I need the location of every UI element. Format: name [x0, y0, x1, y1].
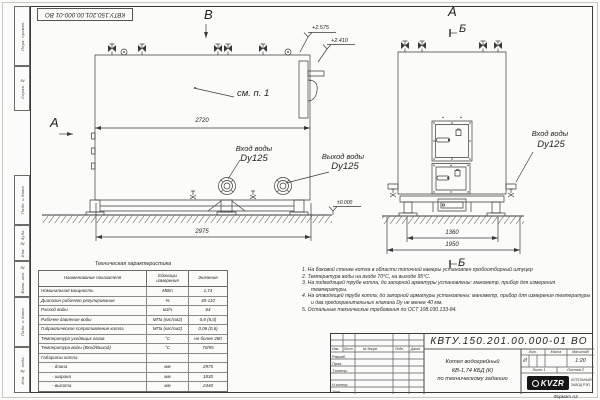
param-unit: мм [147, 363, 189, 372]
col-unit-header: Единицы измерения [147, 271, 189, 286]
role-nkontr: Н.контр. [332, 382, 348, 387]
col-izm: Изм. [332, 347, 339, 351]
param-unit: °С [147, 344, 189, 353]
view-marker-a-top: А [448, 4, 457, 19]
col-sign: Подп. [395, 347, 404, 351]
frame-cell-inv-dubl: Инв. № дубл. [14, 225, 30, 261]
param-name: Номинальная мощность [39, 287, 147, 296]
tech-table-row: - длина мм 2975 [39, 363, 227, 373]
frame-cell-inv-podl: Инв. № подл. [14, 347, 30, 393]
scale-label: Масштаб [567, 350, 594, 354]
tech-table-row: Гидравлическое сопротивление котла МПа (… [39, 325, 227, 335]
sheet-number: Лист 1 [521, 368, 557, 372]
param-value: 64 [189, 306, 227, 315]
param-unit: мм [147, 373, 189, 382]
logo-text: KVZR [541, 379, 564, 388]
note-line: 1. На боковой стенке котла в области топ… [302, 267, 592, 274]
param-name: Рабочее давление воды [39, 316, 147, 325]
param-value: 40-110 [189, 297, 227, 306]
param-value: 0,6 (6,0) [189, 316, 227, 325]
tech-table-row: Температура уходящих газов °С не более 2… [39, 335, 227, 345]
param-value [189, 354, 227, 363]
param-name: Габариты котла [39, 354, 147, 363]
scale-value: 1:20 [567, 358, 594, 364]
param-unit: % [147, 297, 189, 306]
section-marker-b-top: Б [459, 23, 466, 35]
inlet-label-front: Вход воды [522, 129, 578, 138]
param-value: 0,06 (0,6) [189, 325, 227, 334]
note-line: 4. На отводящей трубе котла, до запорной… [302, 293, 592, 306]
elevation-flue: +2.410 [331, 38, 348, 44]
frame-cell-podp-data-1: Подп. и дата [14, 175, 30, 225]
role-prov: Пров. [332, 361, 342, 366]
tech-table-row: Номинальная мощность МВт 1,74 [39, 287, 227, 297]
param-value: 2975 [189, 363, 227, 372]
format-note: Формат А3 [538, 394, 593, 399]
tech-table-title: Техническая характеристика [38, 261, 228, 267]
tech-table-row: Габариты котла [39, 354, 227, 364]
param-name: Диапазон рабочего регулирования [39, 297, 147, 306]
param-name: Температура воды (Вход/Выход) [39, 344, 147, 353]
sheets-total: Листов 2 [557, 368, 594, 372]
param-value: 1,74 [189, 287, 227, 296]
param-name: Температура уходящих газов [39, 335, 147, 344]
param-value: 1830 [189, 373, 227, 382]
param-value: 70/95 [189, 344, 227, 353]
tech-table-row: - ширина мм 1830 [39, 373, 227, 383]
role-tkontr: Т.контр. [332, 368, 348, 373]
col-value-header: Значение [189, 271, 227, 286]
param-unit: °С [147, 335, 189, 344]
inlet-size-front: Dy125 [528, 139, 574, 150]
drawing-sheet: Перв. примен. Справ. № Подп. и дата Инв.… [0, 0, 600, 400]
param-name: - ширина [39, 373, 147, 382]
dim-1950: 1950 [420, 242, 484, 248]
frame-cell-podp-data-2: Подп. и дата [14, 297, 30, 347]
logo-ring-icon [532, 380, 539, 387]
note-reference: см. п. 1 [237, 88, 269, 99]
col-list: Лист [344, 347, 353, 351]
tech-table-row: Рабочее давление воды МПа (кгс/см2) 0,6 … [39, 316, 227, 326]
col-name-header: Наименование показателя [39, 271, 147, 286]
view-marker-b: В [204, 7, 213, 22]
param-unit: МВт [147, 287, 189, 296]
param-name: - длина [39, 363, 147, 372]
product-name: Котел водогрейный КВ-1,74 КБД (К) по тех… [426, 350, 519, 392]
dim-2720: 2720 [170, 118, 234, 124]
tech-table-row: Расход воды м3/ч 64 [39, 306, 227, 316]
lit-value: И [521, 358, 529, 364]
param-unit: МПа (кгс/см2) [147, 316, 189, 325]
elevation-zero: ±0.000 [337, 200, 352, 206]
title-block: КВТУ.150.201.00.000-01 ВО Изм. Лист № до… [330, 333, 593, 393]
tech-table-row: Диапазон рабочего регулирования % 40-110 [39, 297, 227, 307]
tech-table-body: Номинальная мощность МВт 1,74 Диапазон р… [39, 287, 227, 391]
dim-1360: 1360 [420, 230, 484, 236]
param-value: 2440 [189, 382, 227, 391]
param-unit: мм [147, 382, 189, 391]
rotated-docnumber-stamp: КВТУ.150.201.00.000-01 ВО [37, 8, 133, 21]
frame-cell-vzam-inv: Взам. инв. № [14, 261, 30, 297]
company-name: КОТЕЛЬНЫЙ ЗАВОД РЭП [571, 378, 593, 388]
view-marker-a-left: А [50, 115, 59, 130]
param-unit: м3/ч [147, 306, 189, 315]
param-unit [147, 354, 189, 363]
outlet-label-side: Выход воды [312, 152, 374, 161]
doc-number: КВТУ.150.201.00.000-01 ВО [425, 334, 593, 349]
note-line: 5. Остальные технические требования по О… [302, 307, 592, 314]
tech-table-row: Температура воды (Вход/Выход) °С 70/95 [39, 344, 227, 354]
elevation-top: +2.575 [312, 25, 329, 31]
param-unit: МПа (кгс/см2) [147, 325, 189, 334]
frame-cell-sprav-no: Справ. № [14, 66, 30, 111]
inlet-size-side: Dy125 [231, 153, 277, 164]
mass-label: Масса [545, 350, 567, 354]
dim-2975: 2975 [170, 229, 234, 235]
tech-table-header: Наименование показателя Единицы измерени… [39, 271, 227, 287]
note-line: 3. На подводящей трубе котла, до запорно… [302, 280, 592, 293]
role-razrab: Разраб. [332, 354, 346, 359]
param-value: не более 280 [189, 335, 227, 344]
company-logo: KVZR [527, 376, 569, 390]
outlet-size-side: Dy125 [320, 161, 370, 172]
param-name: - высота [39, 382, 147, 391]
tech-table: Наименование показателя Единицы измерени… [38, 270, 228, 392]
col-doc: № докум. [363, 347, 378, 351]
tech-table-row: - высота мм 2440 [39, 382, 227, 391]
technical-notes: 1. На боковой стенке котла в области топ… [302, 267, 592, 313]
param-name: Расход воды [39, 306, 147, 315]
lit-label: Лит. [521, 350, 545, 354]
role-utv: Утв. [332, 389, 341, 394]
frame-cell-perv-primen: Перв. примен. [14, 6, 30, 66]
param-name: Гидравлическое сопротивление котла [39, 325, 147, 334]
col-date: Дата [411, 347, 420, 351]
